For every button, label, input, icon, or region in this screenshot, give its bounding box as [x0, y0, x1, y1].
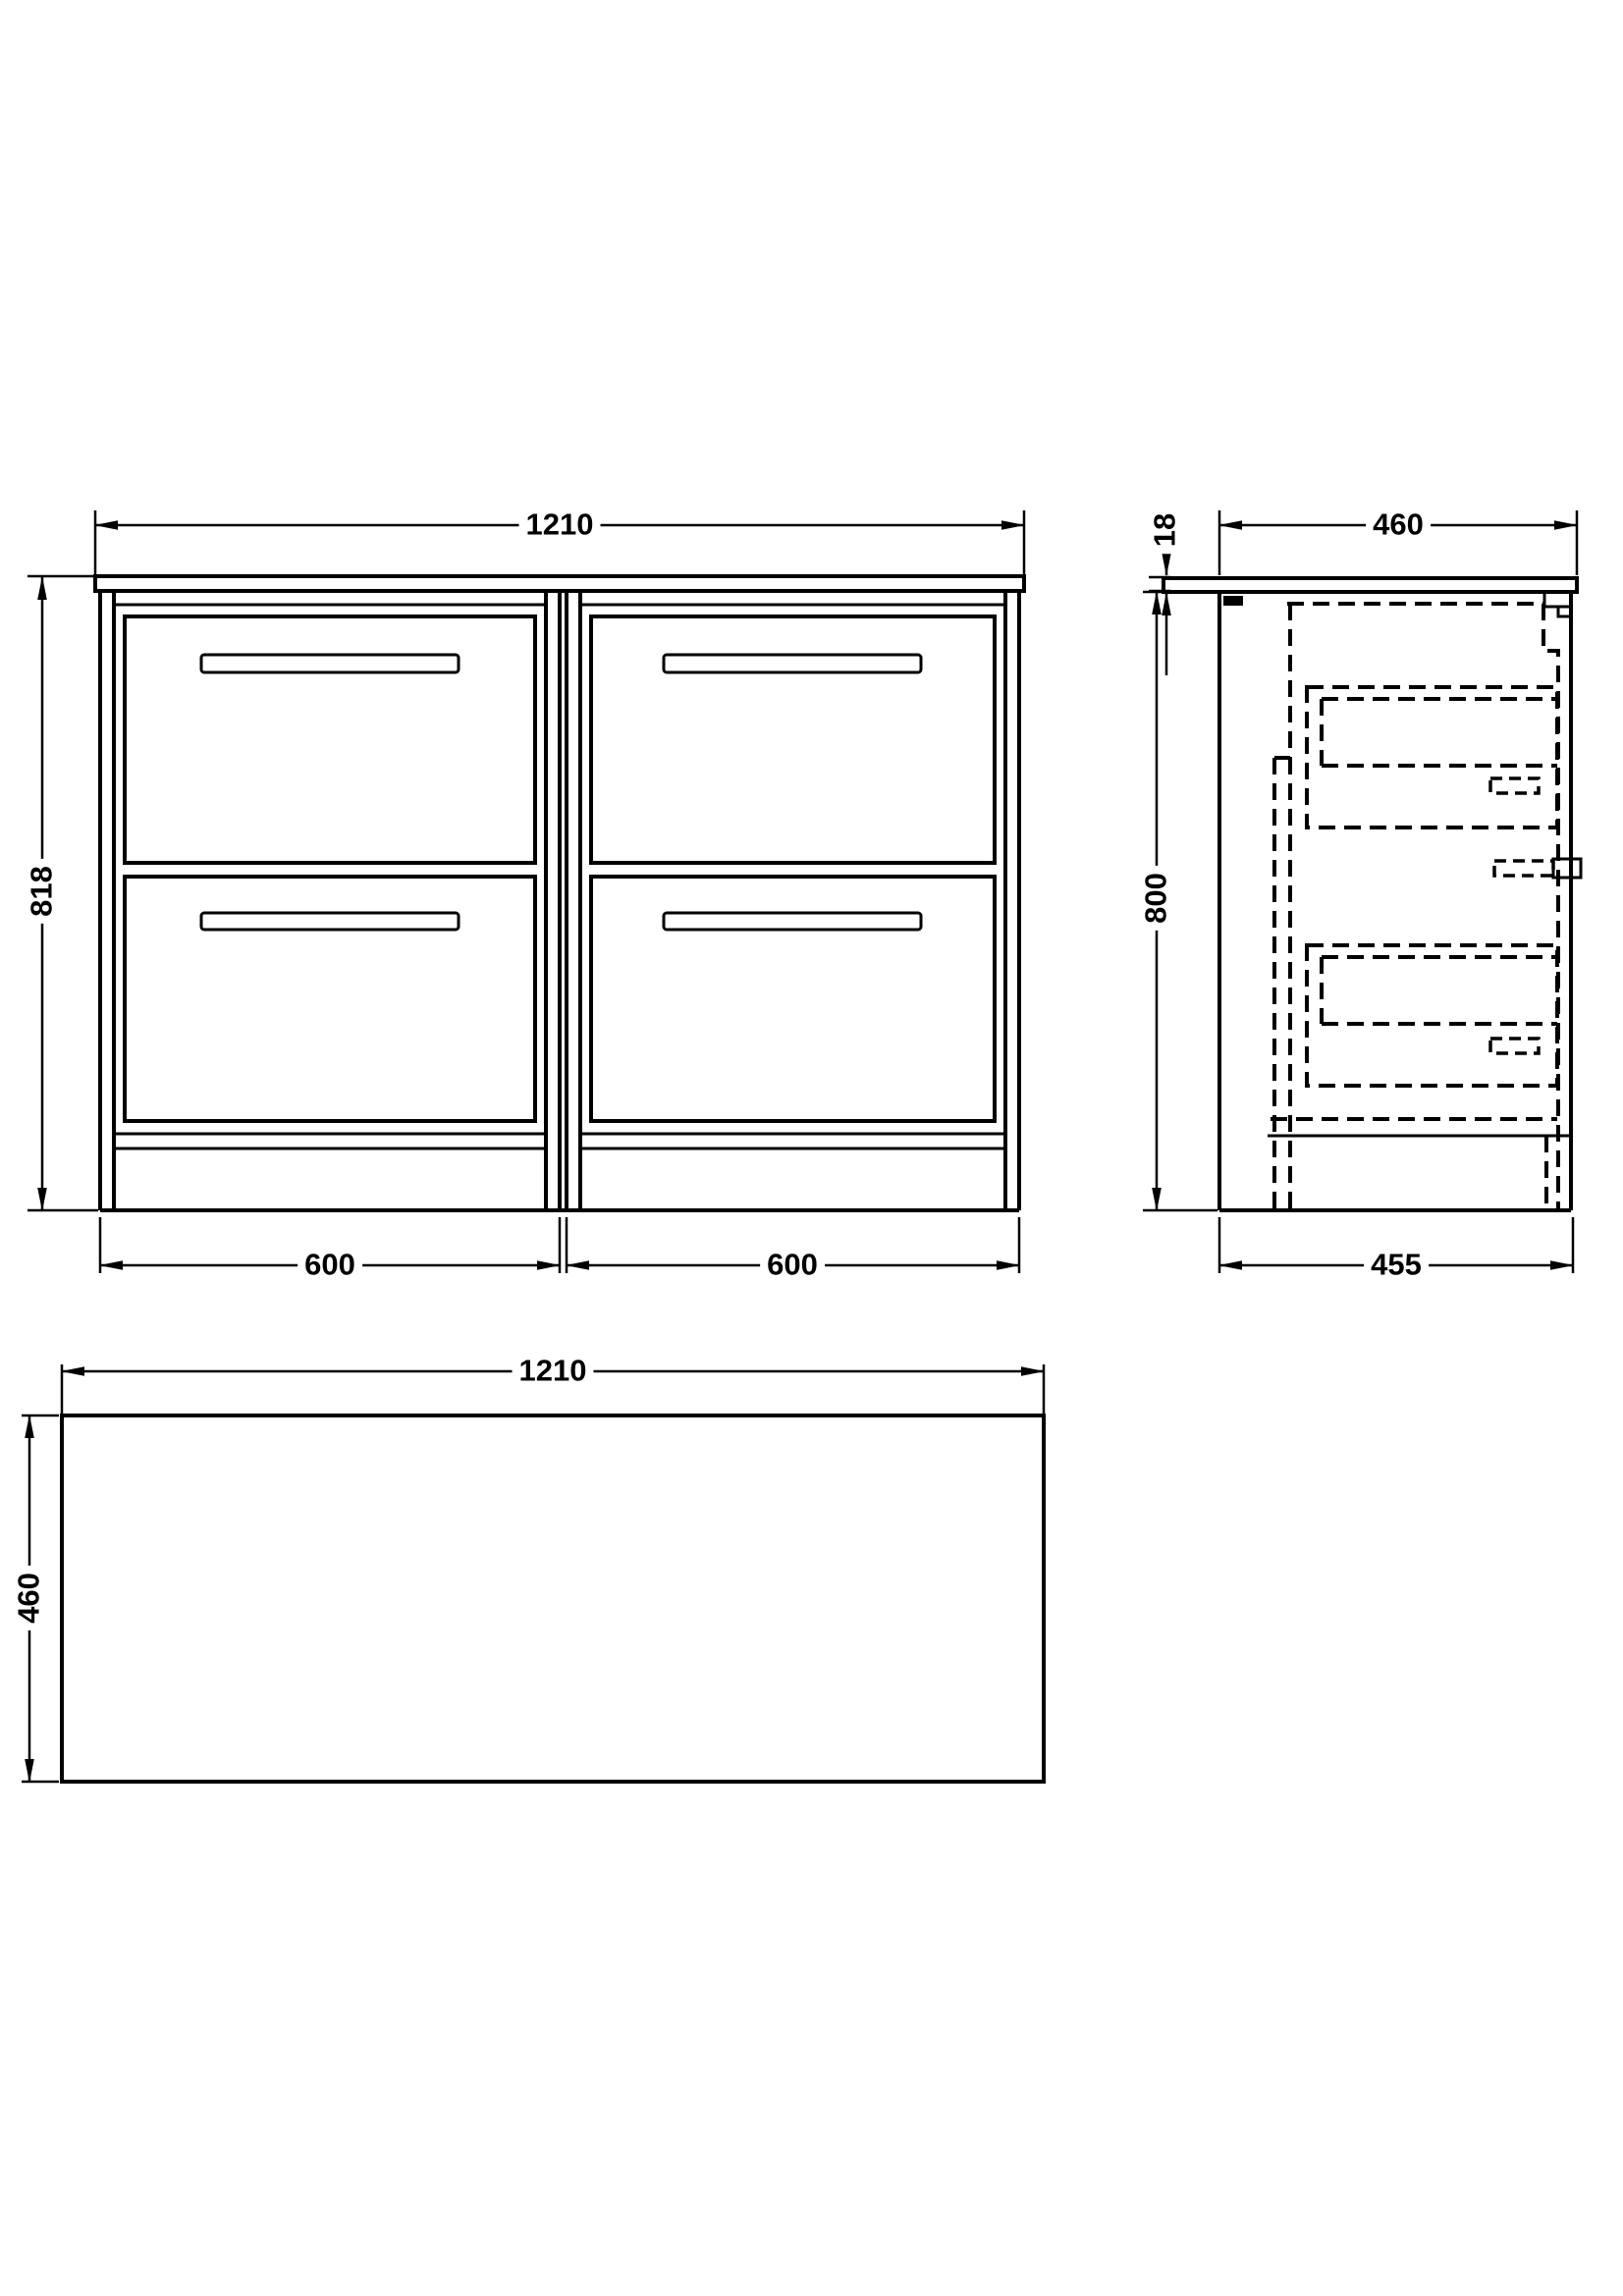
worktop-plan: [62, 1415, 1044, 1782]
plan-view: [62, 1415, 1044, 1782]
dim-front-height-label: 818: [27, 859, 59, 924]
dim-600-left-label: 600: [298, 1250, 362, 1282]
dim-plan-width-label: 1210: [513, 1356, 594, 1388]
dim-worktop-thickness-label: 18: [1150, 507, 1182, 554]
hidden-drawerbox-top: [1307, 687, 1557, 828]
hidden-runner-bottom: [1490, 1039, 1539, 1053]
side-view: [1163, 578, 1581, 1210]
worktop-front: [95, 576, 1024, 591]
worktop-side: [1163, 578, 1577, 592]
dim-side-depth-bottom-label: 455: [1364, 1250, 1429, 1282]
front-view: [95, 576, 1024, 1210]
dim-600-right-label: 600: [760, 1250, 825, 1282]
wall-bracket-top: [1544, 592, 1571, 607]
hidden-bracket-mid: [1494, 861, 1553, 876]
drawer-handle-bottom-left: [201, 913, 459, 930]
dim-side-depth-top-label: 460: [1366, 509, 1431, 542]
drawer-handle-top-right: [664, 655, 921, 672]
dimension-lines: [22, 510, 1577, 1782]
fixing-block: [1223, 596, 1243, 606]
hidden-drawerbox-bottom: [1307, 945, 1557, 1086]
dim-side-height-label: 800: [1141, 866, 1173, 931]
hidden-runner-top: [1490, 778, 1539, 793]
drawing-sheet: 1210 818 600 600 460 18 800 455 1210 460: [0, 0, 1623, 2296]
drawer-handle-top-left: [201, 655, 459, 672]
drawing-svg: [0, 0, 1623, 2296]
drawer-handle-bottom-right: [664, 913, 921, 930]
dim-plan-depth-label: 460: [14, 1566, 46, 1630]
dim-front-width-label: 1210: [519, 509, 601, 542]
